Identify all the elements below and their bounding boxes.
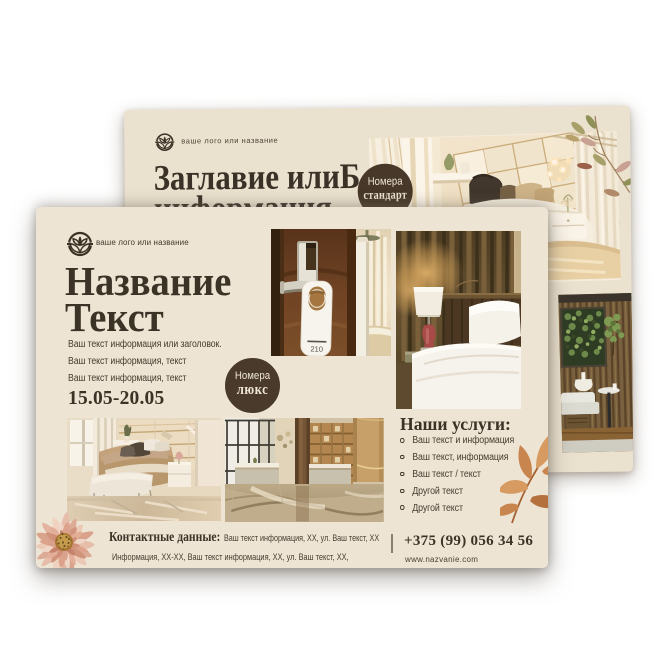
- svg-text:210: 210: [310, 344, 323, 353]
